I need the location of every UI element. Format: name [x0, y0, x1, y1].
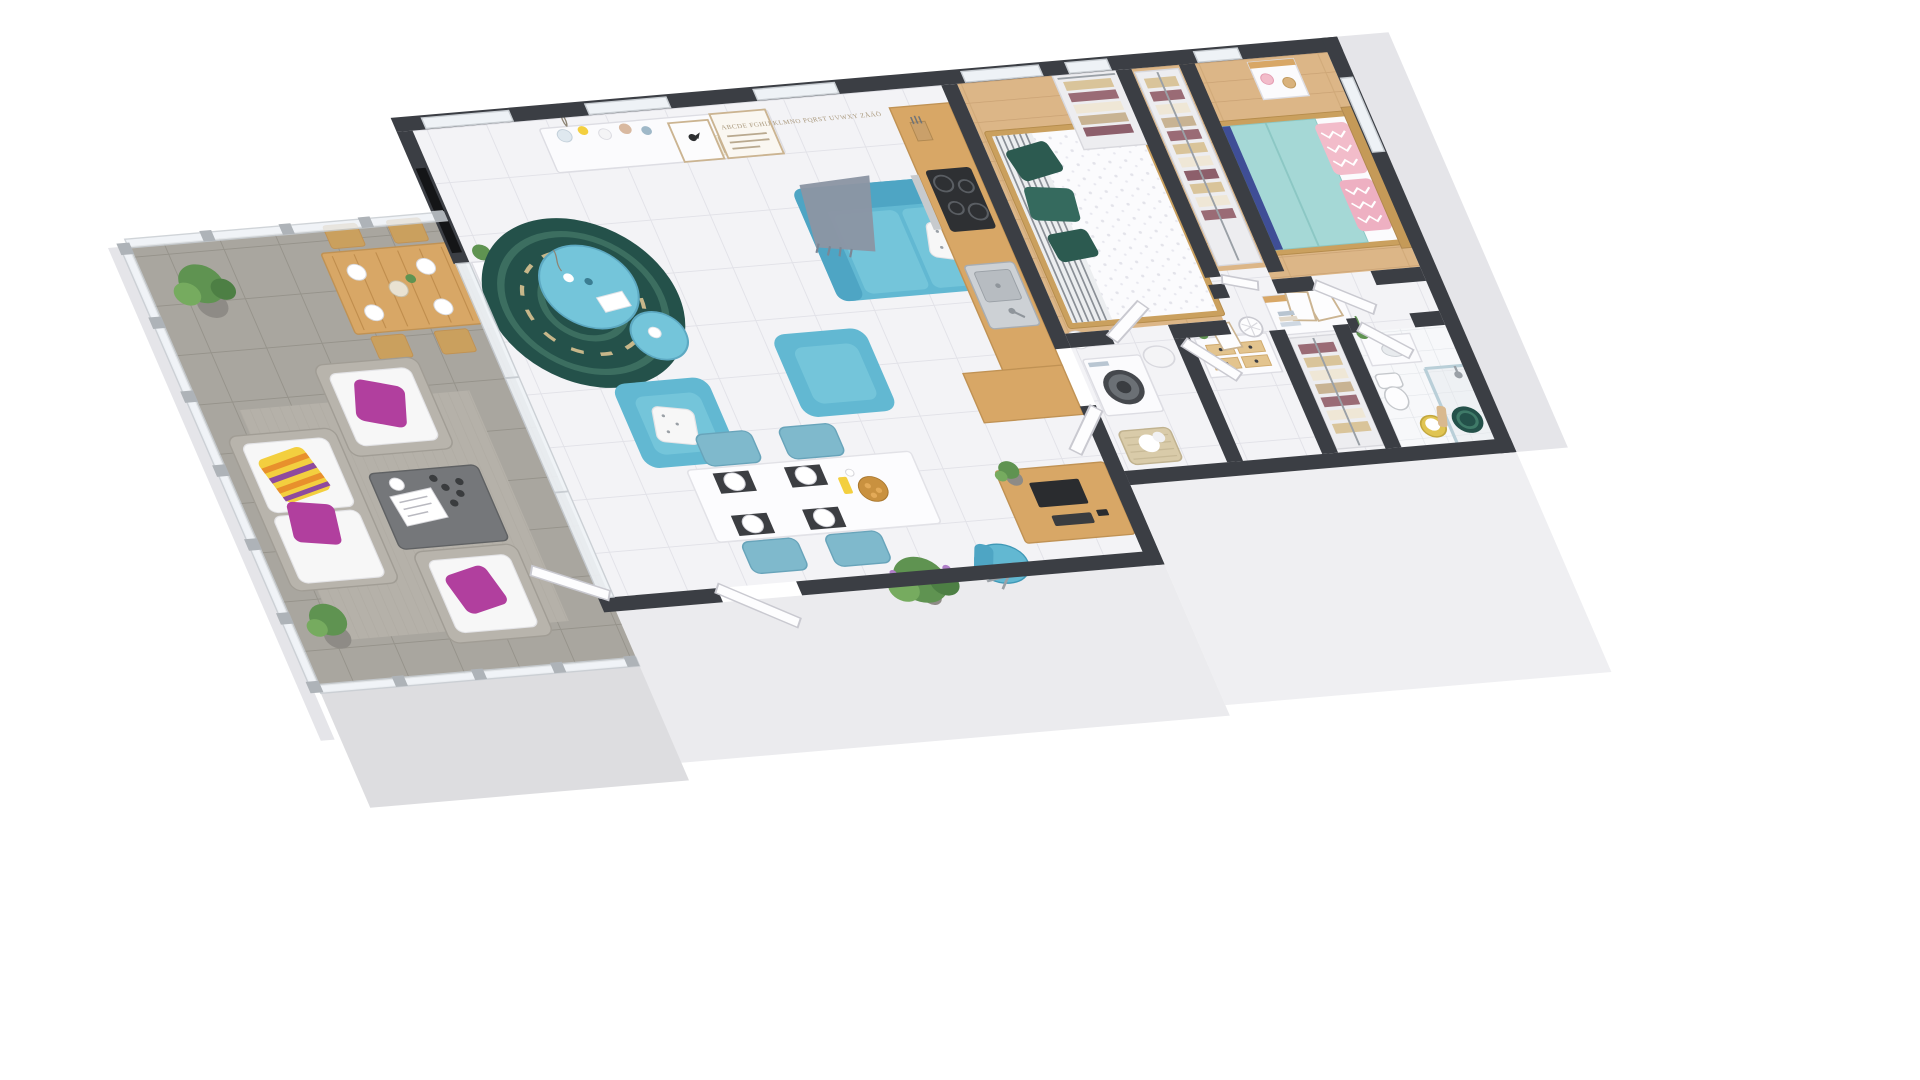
corner-counter — [963, 365, 1083, 423]
floorplan-canvas: ABCDE FGHIJ KLMNO PQRST UVWXY ZÅÄÖ — [0, 0, 1920, 1080]
monitor — [1029, 479, 1089, 508]
apartment-plan: ABCDE FGHIJ KLMNO PQRST UVWXY ZÅÄÖ — [64, 32, 1675, 809]
wall-bathroom-top-b — [1409, 311, 1445, 328]
green-pillow — [1023, 187, 1082, 222]
floorplan-render: ABCDE FGHIJ KLMNO PQRST UVWXY ZÅÄÖ — [0, 0, 1920, 1080]
